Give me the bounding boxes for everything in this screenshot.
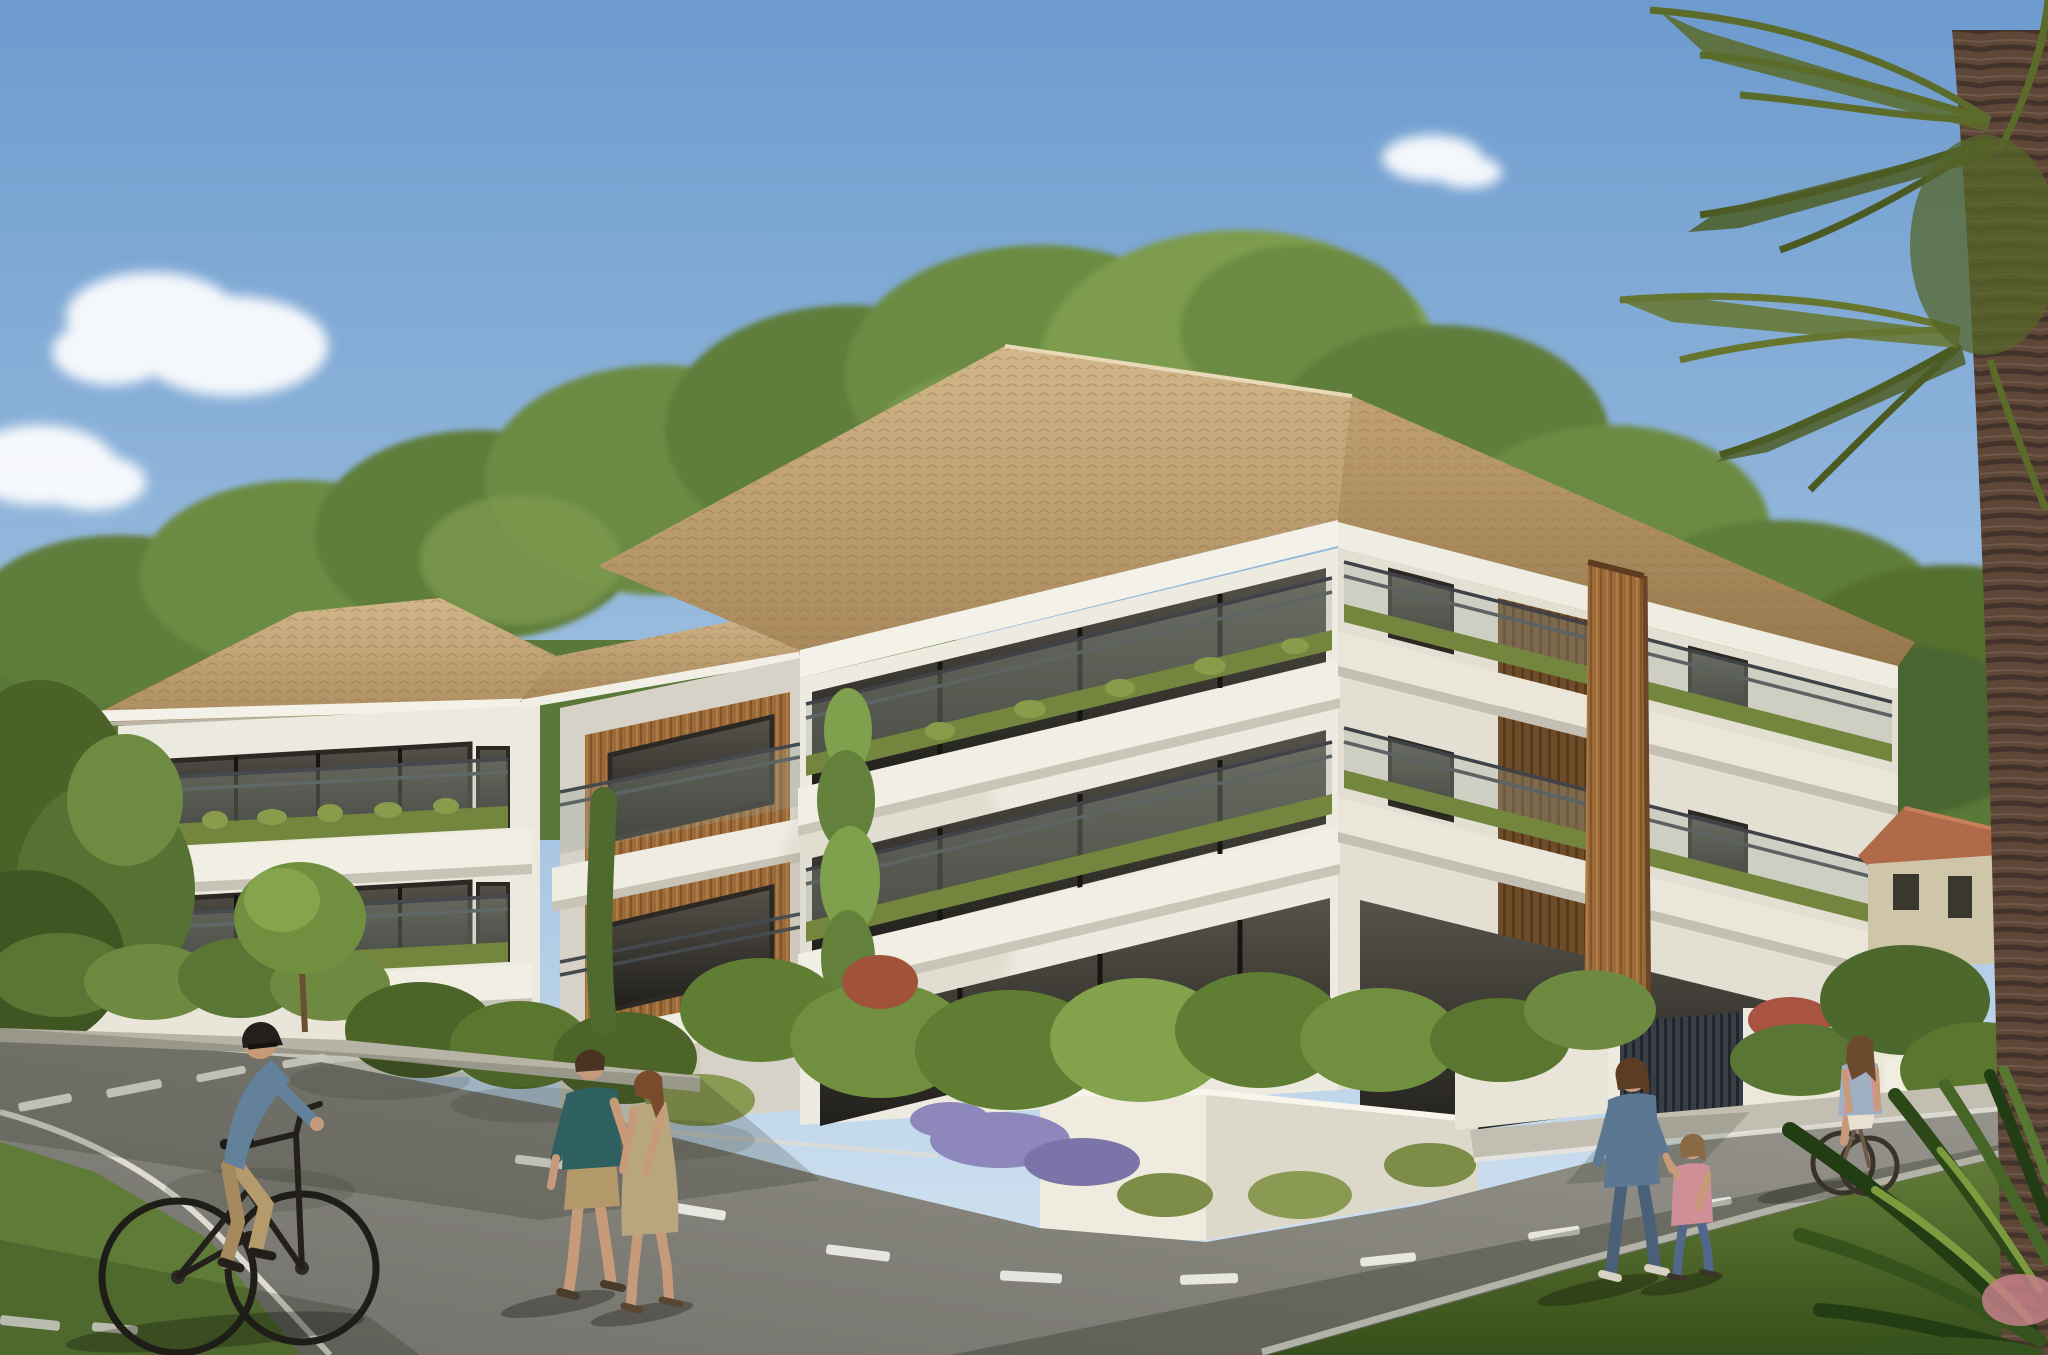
- red-flower-shrub: [842, 955, 918, 1009]
- dash: [1180, 1273, 1238, 1285]
- house-window: [1893, 874, 1919, 910]
- lavender: [1024, 1138, 1140, 1186]
- house-window: [1948, 876, 1972, 918]
- cloud-puff: [1434, 156, 1502, 188]
- cyclist-sunglasses: [250, 1044, 276, 1047]
- grass-tuft: [1248, 1171, 1352, 1219]
- small-tree-highlight: [244, 868, 320, 932]
- grass-tuft: [1117, 1173, 1213, 1217]
- left-hedge-light: [67, 734, 183, 866]
- cloud-puff: [52, 319, 172, 385]
- cypress: [599, 800, 604, 1022]
- rendering-canvas: [0, 0, 2048, 1355]
- cyclist-hand: [310, 1117, 324, 1131]
- grass-tuft: [1384, 1143, 1476, 1187]
- man-forearm: [551, 1158, 556, 1186]
- cloud-puff: [38, 454, 146, 510]
- scene-svg: [0, 0, 2048, 1355]
- lavender: [910, 1102, 990, 1138]
- bed-shrub: [1524, 970, 1656, 1050]
